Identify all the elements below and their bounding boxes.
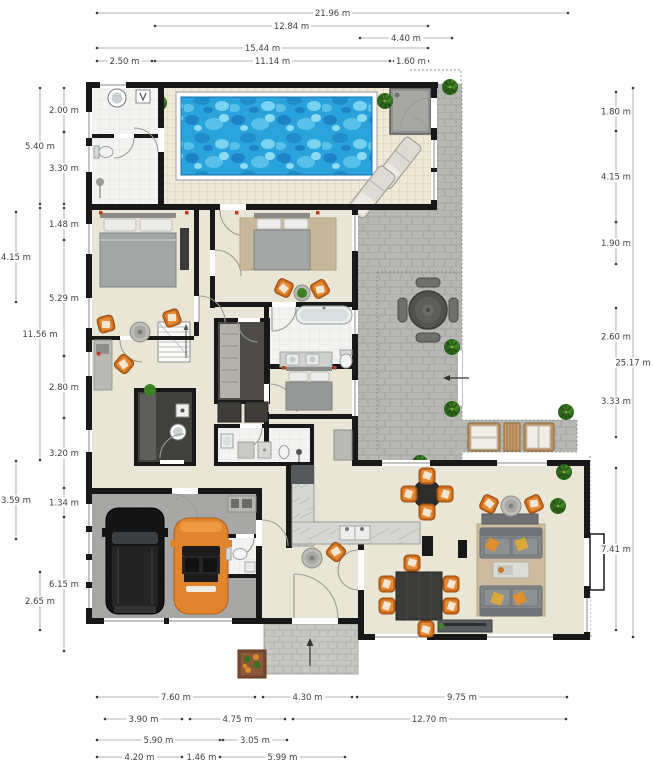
sofa bbox=[480, 528, 542, 558]
plant bbox=[556, 464, 572, 480]
toilet[interactable] bbox=[340, 350, 352, 368]
dim-label: 3.30 m bbox=[49, 164, 79, 174]
dim-label: 1.90 m bbox=[601, 239, 631, 249]
fridge bbox=[292, 466, 314, 484]
dim-label: 1.80 m bbox=[601, 108, 631, 118]
dim-label: 9.75 m bbox=[447, 693, 477, 703]
plant bbox=[550, 498, 566, 514]
flower-planter[interactable] bbox=[238, 650, 266, 678]
dim-label: 3.05 m bbox=[240, 736, 270, 746]
dim-label: 2.50 m bbox=[110, 57, 140, 67]
dim-label: 5.40 m bbox=[25, 142, 55, 152]
staircase[interactable] bbox=[158, 322, 190, 362]
plant[interactable] bbox=[558, 404, 574, 420]
window bbox=[382, 460, 430, 466]
dim-label: 4.15 m bbox=[601, 173, 631, 183]
dim-label: 2.60 m bbox=[601, 333, 631, 343]
dim-label: 12.70 m bbox=[412, 715, 447, 725]
dim-label: 4.30 m bbox=[293, 693, 323, 703]
dim-label: 3.90 m bbox=[129, 715, 159, 725]
window bbox=[86, 298, 92, 328]
dim-label: 2.80 m bbox=[49, 383, 79, 393]
plant[interactable] bbox=[377, 93, 393, 109]
window bbox=[352, 310, 358, 334]
window bbox=[431, 140, 437, 168]
window bbox=[487, 634, 553, 640]
dim-label: 5.90 m bbox=[144, 736, 174, 746]
window bbox=[86, 504, 92, 526]
garage-cabinet[interactable] bbox=[228, 496, 256, 512]
dim-label: 4.15 m bbox=[1, 253, 31, 263]
dim-label: 11.56 m bbox=[22, 330, 57, 340]
floor-plan-svg: 21.96 m12.84 m4.40 m15.44 m2.50 m11.14 m… bbox=[0, 0, 653, 768]
armchair[interactable] bbox=[96, 314, 116, 334]
tv-panel[interactable] bbox=[180, 228, 189, 270]
bathtub[interactable] bbox=[296, 306, 352, 324]
dim-label: 12.84 m bbox=[274, 22, 309, 32]
dim-label: 11.14 m bbox=[255, 57, 290, 67]
garage-door bbox=[104, 618, 232, 624]
window bbox=[100, 82, 126, 88]
window bbox=[352, 215, 358, 251]
plant[interactable] bbox=[442, 79, 458, 95]
dim-label: 1.60 m bbox=[396, 57, 426, 67]
tv-console[interactable] bbox=[438, 620, 492, 632]
outdoor-shower-room[interactable] bbox=[390, 88, 431, 134]
side-table bbox=[501, 496, 521, 516]
swimming-pool[interactable] bbox=[181, 97, 372, 175]
dim-label: 15.44 m bbox=[245, 44, 280, 54]
dim-label: 5.99 m bbox=[268, 753, 298, 763]
window bbox=[86, 112, 92, 138]
dim-label: 3.59 m bbox=[1, 496, 31, 506]
sofa bbox=[480, 586, 542, 616]
plant bbox=[297, 288, 307, 298]
bay-window bbox=[584, 534, 604, 590]
window bbox=[86, 146, 92, 172]
toilet bbox=[94, 146, 113, 158]
vanity-double-sink[interactable] bbox=[280, 352, 332, 367]
plant[interactable] bbox=[144, 384, 156, 396]
window bbox=[86, 352, 92, 376]
dim-label: 5.29 m bbox=[49, 294, 79, 304]
window bbox=[86, 588, 92, 608]
dim-label: 1.48 m bbox=[49, 220, 79, 230]
window bbox=[584, 598, 590, 632]
dim-label: 7.41 m bbox=[601, 545, 631, 555]
coffee-table bbox=[493, 562, 529, 578]
dim-label: 4.40 m bbox=[391, 34, 421, 44]
outdoor-lounge-set[interactable] bbox=[468, 423, 554, 451]
plant[interactable] bbox=[444, 401, 460, 417]
floor-plan-canvas[interactable]: 21.96 m12.84 m4.40 m15.44 m2.50 m11.14 m… bbox=[0, 0, 653, 768]
window bbox=[86, 560, 92, 582]
window bbox=[86, 224, 92, 254]
window bbox=[86, 532, 92, 554]
hall-cabinet[interactable] bbox=[334, 430, 352, 460]
dim-label: 1.34 m bbox=[49, 499, 79, 509]
window bbox=[497, 460, 547, 466]
window bbox=[431, 172, 437, 200]
dim-label: 6.15 m bbox=[49, 580, 79, 590]
dim-label: 1.46 m bbox=[187, 753, 217, 763]
suv-car[interactable] bbox=[102, 508, 168, 614]
dim-label: 3.33 m bbox=[601, 397, 631, 407]
window bbox=[86, 430, 92, 452]
dim-label: 3.20 m bbox=[49, 449, 79, 459]
dim-label: 4.75 m bbox=[223, 715, 253, 725]
dim-label: 21.96 m bbox=[315, 9, 350, 19]
plant[interactable] bbox=[444, 339, 460, 355]
dim-label: 2.65 m bbox=[25, 597, 55, 607]
side-table[interactable] bbox=[302, 548, 322, 568]
dim-label: 4.20 m bbox=[125, 753, 155, 763]
window bbox=[352, 380, 358, 416]
dim-label: 2.00 m bbox=[49, 106, 79, 116]
kitchenette[interactable] bbox=[138, 392, 192, 462]
side-table[interactable] bbox=[130, 322, 150, 342]
dim-label: 7.60 m bbox=[161, 693, 191, 703]
entrance-path[interactable] bbox=[264, 624, 358, 674]
dim-label: 25.17 m bbox=[615, 359, 650, 369]
sports-car[interactable] bbox=[170, 518, 232, 614]
